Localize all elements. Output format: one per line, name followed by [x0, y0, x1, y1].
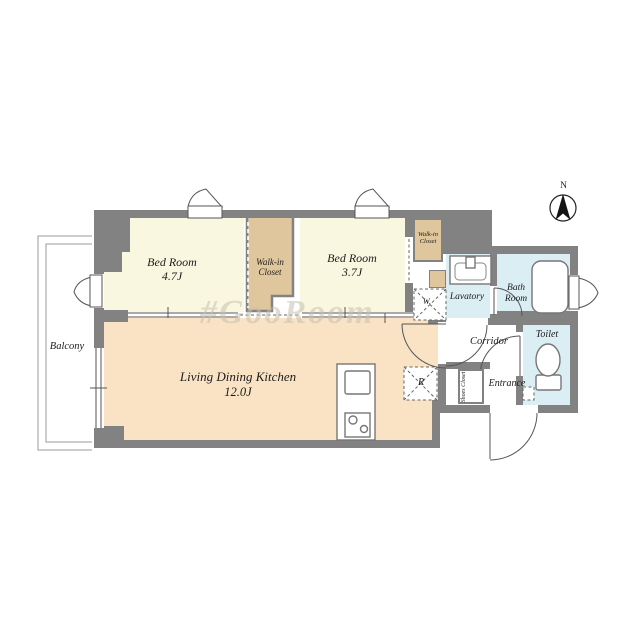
bedroom2-label: Bed Room3.7J — [302, 252, 402, 280]
toilet-label: Toilet — [524, 329, 570, 341]
window-gap-right — [570, 275, 578, 311]
compass-label: N — [556, 181, 571, 192]
wall-corridor-entrance — [446, 362, 490, 369]
north-arrow-icon — [550, 194, 576, 221]
lavatory-label: Lavatory — [441, 292, 493, 303]
wic2-label: Walk-inCloset — [413, 231, 443, 246]
wall-bottom — [94, 440, 440, 448]
washer-label: W. — [416, 297, 438, 306]
corridor-label: Corridor — [456, 336, 522, 348]
lavatory-floor — [446, 254, 490, 318]
window-gap-top-a — [188, 210, 222, 218]
wall-top-right-block — [443, 218, 488, 254]
door-gap-wic2 — [405, 237, 413, 283]
entrance-door-swing — [490, 413, 537, 460]
wall-bath-bottom — [490, 311, 578, 319]
door-gap-ldk — [438, 322, 446, 364]
refrigerator-label: R — [412, 377, 430, 389]
ldk-label: Living Dining Kitchen12.0J — [150, 370, 326, 399]
entrance-label: Entrance — [480, 378, 534, 390]
bedroom1-label: Bed Room4.7J — [112, 256, 232, 284]
door-gap-entrance — [490, 405, 538, 413]
window-gap-ldk — [94, 348, 104, 428]
window-gap-top-b — [355, 210, 389, 218]
door-gap-lavatory — [446, 318, 488, 325]
floor-plan: #GooRoom Shoes Closet Bed Room4.7J Walk-… — [0, 0, 640, 640]
balcony-label: Balcony — [40, 341, 94, 353]
wall-top — [94, 210, 492, 218]
wall-right — [570, 246, 578, 413]
wic1-label: Walk-inCloset — [246, 257, 294, 278]
wall-top-right — [484, 246, 578, 254]
shoes-closet-label: Shoes — [461, 388, 467, 402]
bathroom-label: BathRoom — [496, 283, 536, 305]
window-gap-left — [94, 274, 104, 308]
closet-block — [429, 270, 446, 288]
